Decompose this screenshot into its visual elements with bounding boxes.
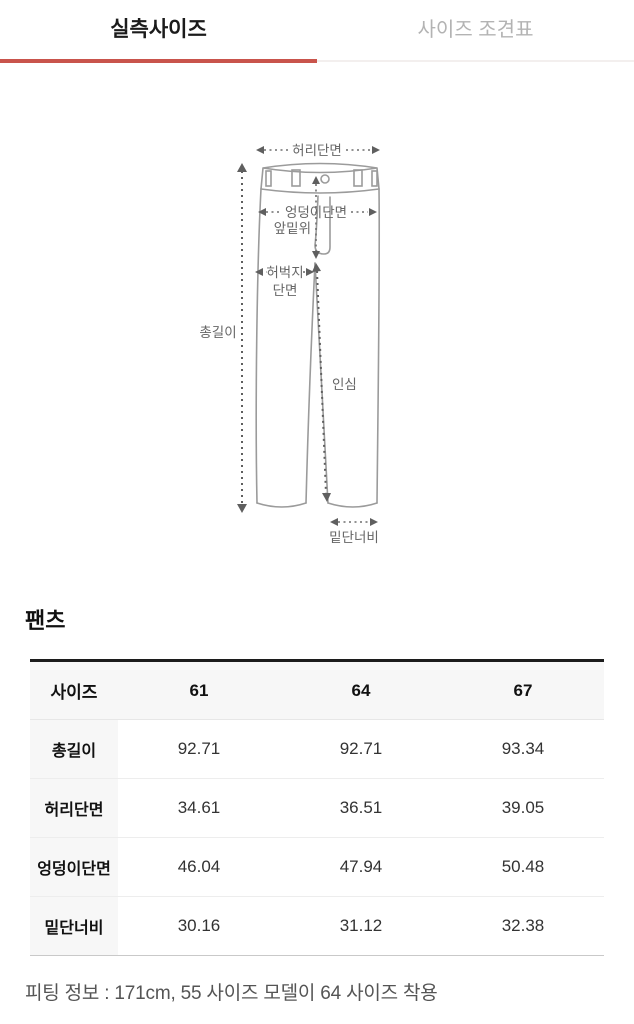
header-size-67: 67: [442, 661, 604, 720]
button-icon: [321, 175, 329, 183]
cell: 50.48: [442, 838, 604, 897]
thigh-width-arrow: 허벅지 단면: [255, 265, 314, 298]
cell: 92.71: [280, 720, 442, 779]
fitting-info-text: 피팅 정보 : 171cm, 55 사이즈 모델이 64 사이즈 착용: [25, 978, 609, 1005]
measurement-table: 사이즈 61 64 67 총길이 92.71 92.71 93.34 허리단면 …: [30, 659, 604, 956]
row-label: 총길이: [30, 720, 118, 779]
inseam-label: 인심: [332, 377, 357, 392]
header-size-61: 61: [118, 661, 280, 720]
active-tab-indicator: [0, 59, 317, 63]
front-rise-label: 앞밑위: [274, 221, 311, 236]
total-length-arrow: 총길이: [199, 163, 247, 513]
waist-width-arrow: 허리단면: [256, 143, 380, 158]
cell: 34.61: [118, 779, 280, 838]
cell: 92.71: [118, 720, 280, 779]
total-length-label: 총길이: [199, 325, 236, 340]
table-row: 총길이 92.71 92.71 93.34: [30, 720, 604, 779]
table-title: 팬츠: [25, 603, 634, 635]
hem-width-arrow: 밑단너비: [329, 518, 379, 545]
cell: 39.05: [442, 779, 604, 838]
inseam-arrow: 인심: [312, 263, 357, 502]
cell: 46.04: [118, 838, 280, 897]
pants-measurement-diagram: 허리단면 엉덩이단면 앞밑위 허벅지 단면: [0, 105, 634, 585]
cell: 32.38: [442, 897, 604, 956]
hem-width-label: 밑단너비: [329, 530, 379, 545]
table-row: 밑단너비 30.16 31.12 32.38: [30, 897, 604, 956]
table-row: 엉덩이단면 46.04 47.94 50.48: [30, 838, 604, 897]
tab-size-chart[interactable]: 사이즈 조견표: [317, 0, 634, 63]
size-tab-bar: 실측사이즈 사이즈 조견표: [0, 0, 634, 63]
hip-width-arrow: 엉덩이단면: [258, 205, 377, 220]
row-label: 허리단면: [30, 779, 118, 838]
row-label: 엉덩이단면: [30, 838, 118, 897]
table-header-row: 사이즈 61 64 67: [30, 661, 604, 720]
cell: 47.94: [280, 838, 442, 897]
thigh-width-label-line2: 단면: [273, 283, 298, 298]
tab-actual-size[interactable]: 실측사이즈: [0, 0, 317, 63]
cell: 31.12: [280, 897, 442, 956]
pants-diagram-svg: 허리단면 엉덩이단면 앞밑위 허벅지 단면: [0, 105, 634, 585]
table-row: 허리단면 34.61 36.51 39.05: [30, 779, 604, 838]
inactive-tab-underline: [317, 60, 634, 62]
row-label: 밑단너비: [30, 897, 118, 956]
waist-width-label: 허리단면: [292, 143, 342, 158]
thigh-width-label-line1: 허벅지: [266, 265, 303, 280]
header-size-64: 64: [280, 661, 442, 720]
cell: 93.34: [442, 720, 604, 779]
cell: 30.16: [118, 897, 280, 956]
header-size: 사이즈: [30, 661, 118, 720]
cell: 36.51: [280, 779, 442, 838]
